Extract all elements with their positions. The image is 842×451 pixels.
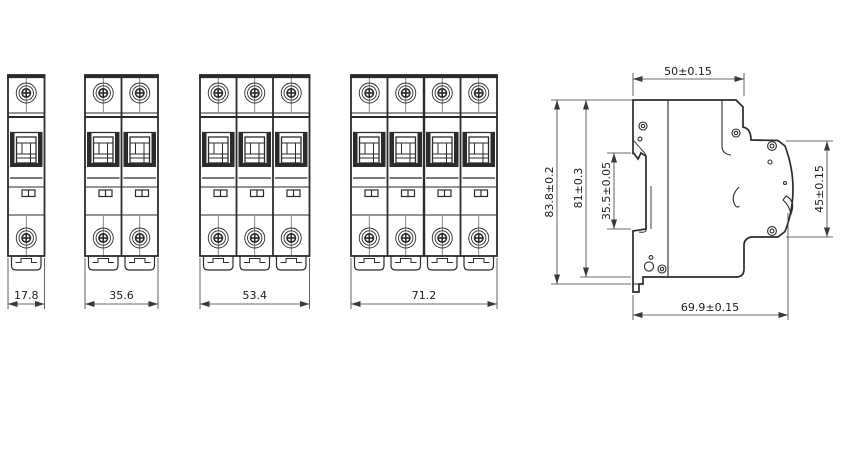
breaker-pole	[273, 77, 310, 270]
front-view-3-pole: 53.4	[199, 75, 311, 309]
side-view: 50±0.15 69.9±0.15 83.8±0.2 81±0.3 35.5±0…	[543, 65, 833, 320]
dim-label-overall-depth: 69.9±0.15	[681, 301, 739, 314]
dim-label-din-recess: 35.5±0.05	[600, 162, 613, 220]
linkage-slot	[733, 187, 739, 207]
dim-label-53-4: 53.4	[243, 289, 268, 302]
front-view-4-pole: 71.2	[350, 75, 498, 309]
side-body-outline	[633, 100, 793, 292]
breaker-pole	[461, 77, 498, 270]
drawing-page: 17.8 35.6 53.4	[0, 0, 842, 451]
side-dimensions	[551, 73, 833, 320]
dim-label-body-height: 81±0.3	[572, 168, 585, 209]
dim-label-71-2: 71.2	[412, 289, 437, 302]
mcb-dimension-drawing: 17.8 35.6 53.4	[0, 0, 842, 451]
breaker-pole	[424, 77, 461, 270]
breaker-pole	[122, 77, 159, 270]
front-view-1-pole: 17.8	[7, 75, 46, 309]
breaker-pole	[85, 77, 122, 270]
dim-label-front-face: 45±0.15	[813, 165, 826, 213]
front-view-2-pole: 35.6	[84, 75, 159, 309]
side-rivets	[638, 122, 786, 273]
breaker-pole	[388, 77, 425, 270]
breaker-pole	[351, 77, 388, 270]
dim-label-overall-height: 83.8±0.2	[543, 166, 556, 217]
dim-label-17-8: 17.8	[14, 289, 39, 302]
side-internal-details	[633, 100, 793, 284]
breaker-pole	[8, 77, 45, 270]
dim-label-top-width: 50±0.15	[664, 65, 712, 78]
dim-label-35-6: 35.6	[109, 289, 134, 302]
breaker-pole	[237, 77, 274, 270]
breaker-pole	[200, 77, 237, 270]
